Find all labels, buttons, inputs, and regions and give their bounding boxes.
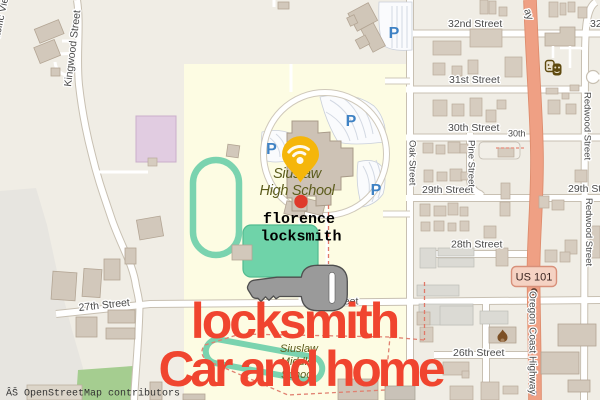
- svg-text:30th: 30th: [508, 129, 526, 139]
- svg-text:Car and home: Car and home: [159, 341, 445, 397]
- svg-text:Pine Street: Pine Street: [466, 140, 477, 187]
- svg-text:P: P: [266, 141, 277, 158]
- svg-text:32nd: 32nd: [590, 18, 600, 30]
- svg-text:32nd Street: 32nd Street: [448, 18, 502, 30]
- svg-text:P: P: [346, 113, 357, 130]
- svg-text:P: P: [371, 182, 382, 199]
- svg-text:Oak Street: Oak Street: [407, 140, 418, 186]
- svg-text:US 101: US 101: [516, 272, 553, 284]
- svg-text:28th Street: 28th Street: [451, 239, 502, 251]
- svg-text:Oregon Coast Highway: Oregon Coast Highway: [527, 291, 538, 394]
- svg-text:Redwood Street: Redwood Street: [582, 92, 593, 160]
- svg-text:locksmith: locksmith: [261, 229, 342, 246]
- svg-text:31st Street: 31st Street: [449, 74, 500, 86]
- svg-text:29th Street: 29th Street: [568, 183, 600, 195]
- svg-text:ÂŠ OpenStreetMap contributors: ÂŠ OpenStreetMap contributors: [6, 386, 180, 400]
- svg-text:Redwood Street: Redwood Street: [583, 198, 594, 266]
- svg-text:30th Street: 30th Street: [448, 122, 499, 134]
- svg-text:26th Street: 26th Street: [453, 347, 504, 359]
- svg-text:florence: florence: [263, 211, 335, 228]
- svg-text:P: P: [389, 25, 400, 42]
